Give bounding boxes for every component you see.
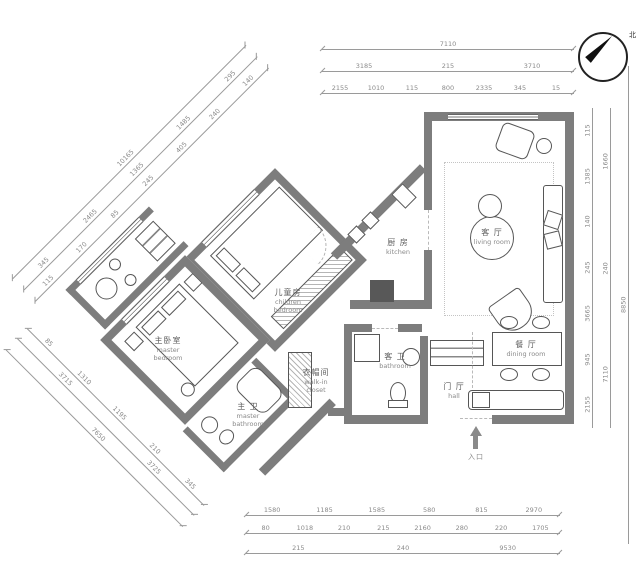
- dimension-value: 2155: [322, 85, 358, 94]
- window: [448, 114, 538, 120]
- sink: [198, 413, 222, 437]
- dimension-value: 580: [403, 507, 455, 516]
- dimension-value: 1580: [246, 507, 298, 516]
- dimension-value: 115: [394, 85, 430, 94]
- room-label-kitchen: 厨 房 kitchen: [372, 238, 424, 256]
- dimension-value: 15: [538, 85, 574, 94]
- dimension-value: 3185: [322, 63, 406, 72]
- stool: [106, 256, 123, 273]
- dimension-value: 345: [502, 85, 538, 94]
- toilet: [216, 426, 237, 447]
- dimension-value: 115: [583, 108, 592, 154]
- wall: [344, 330, 352, 424]
- dimension-value: 215: [364, 525, 403, 534]
- dimension-value: 9530: [455, 545, 560, 554]
- dimension-value: 3665: [583, 291, 592, 337]
- wall: [344, 415, 424, 424]
- dimension-value: 3715: [17, 333, 112, 428]
- washer-cabinet: [354, 334, 380, 362]
- lamp: [536, 138, 552, 154]
- bathtub: [233, 364, 285, 416]
- dimension-value: 1385: [583, 154, 592, 200]
- kitchen-door-dashed: [428, 210, 429, 250]
- shaft: [370, 280, 394, 302]
- shoe-cabinet: [430, 340, 484, 366]
- dimension-row-bottom-2: 80101821021521602802201705: [246, 524, 560, 534]
- dimension-row-bottom-1: 1580118515855808152970: [246, 506, 560, 516]
- dimension-value: 280: [442, 525, 481, 534]
- dimension-value: 240: [351, 545, 456, 554]
- wall-kitchen-diagonal: [331, 164, 426, 259]
- dimension-value: 1705: [521, 525, 560, 534]
- wall: [398, 324, 422, 332]
- dimension-value: 215: [406, 63, 490, 72]
- toilet-tank: [388, 400, 408, 408]
- dimension-value: 7110: [322, 41, 574, 50]
- dimension-value: 2160: [403, 525, 442, 534]
- dimension-value: 3710: [490, 63, 574, 72]
- wall: [344, 324, 372, 332]
- dimension-value: 2155: [583, 382, 592, 428]
- dimension-value: 1585: [351, 507, 403, 516]
- dimension-value: 2335: [466, 85, 502, 94]
- armchair: [494, 121, 536, 161]
- dimension-value: 210: [325, 525, 364, 534]
- dimension-value: 800: [430, 85, 466, 94]
- compass-needle-icon: [585, 33, 615, 63]
- dimension-col-right-2: 16602407110: [610, 108, 621, 428]
- stool: [122, 272, 139, 289]
- coffee-table: [470, 216, 514, 260]
- wall: [420, 336, 428, 424]
- bathroom-door-dashed: [372, 328, 398, 329]
- dimension-value: 1018: [285, 525, 324, 534]
- sink: [402, 348, 420, 366]
- wall: [424, 160, 432, 210]
- dimension-col-right-3: 115138514024536659452155: [592, 108, 603, 428]
- cushion: [472, 392, 490, 408]
- dimension-value: 80: [246, 525, 285, 534]
- dimension-row-top-3: 21551010115800233534515: [322, 84, 574, 94]
- dimension-col-right-1: 8850: [628, 66, 639, 544]
- bench: [135, 221, 176, 262]
- wall: [565, 112, 574, 424]
- dimension-value: 1010: [358, 85, 394, 94]
- dimension-row-top-2: 31852153710: [322, 62, 574, 72]
- room-label-en: kitchen: [372, 248, 424, 256]
- chair: [532, 368, 550, 381]
- wall: [492, 415, 574, 424]
- side-table: [478, 194, 502, 218]
- dimension-value: 215: [246, 545, 351, 554]
- dimension-value: 815: [455, 507, 507, 516]
- nightstand: [184, 273, 203, 292]
- dimension-value: 945: [583, 337, 592, 383]
- dimension-value: 1185: [298, 507, 350, 516]
- dimension-row-top-1: 7110: [322, 40, 574, 50]
- circulation-dashed: [472, 332, 473, 388]
- entry-threshold-dashed: [460, 418, 492, 419]
- chair: [500, 368, 518, 381]
- chair: [532, 316, 550, 329]
- dining-table: [492, 332, 562, 366]
- chair: [500, 316, 518, 329]
- dimension-value: 140: [583, 199, 592, 245]
- entrance-label: 入口: [468, 452, 484, 462]
- compass-icon: [578, 32, 628, 82]
- room-label-zh: 厨 房: [372, 238, 424, 248]
- nightstand: [124, 332, 144, 352]
- floor-plan-canvas: 入口 客 厅 living room 厨 房 kitchen 儿童房 child…: [0, 0, 640, 562]
- dimension-row-bottom-3: 2152409530: [246, 544, 560, 554]
- closet-wardrobe: [288, 352, 312, 408]
- dimension-value: 2970: [508, 507, 560, 516]
- entrance-arrow-stem: [473, 436, 478, 449]
- dimension-value: 220: [482, 525, 521, 534]
- entrance-arrow-icon: [470, 426, 482, 436]
- dimension-value: 245: [583, 245, 592, 291]
- north-label: 北: [629, 30, 636, 40]
- round-table: [91, 273, 122, 304]
